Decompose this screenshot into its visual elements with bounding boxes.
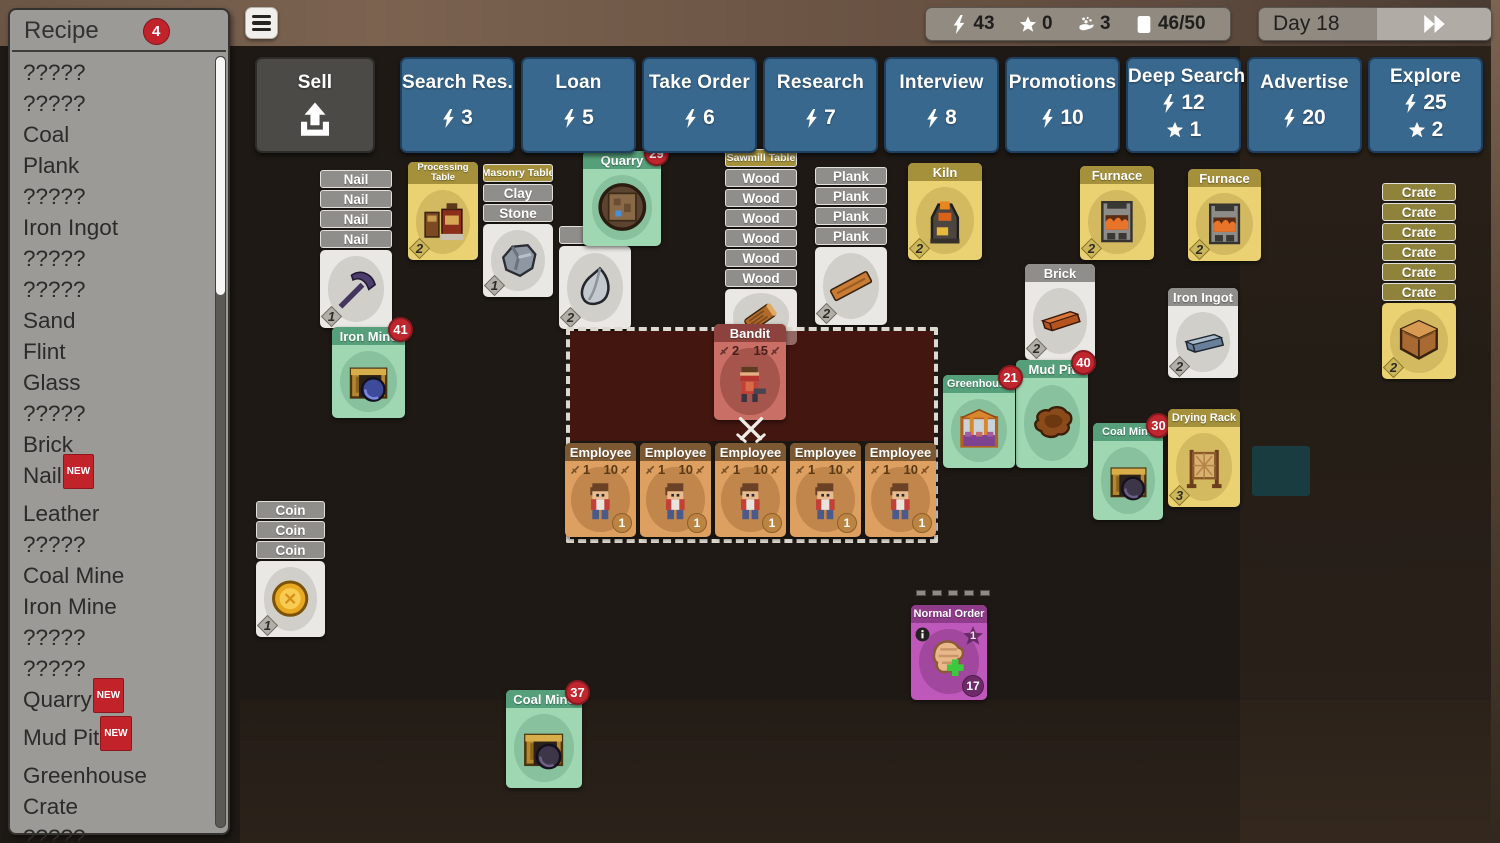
recipe-panel-title: Recipe	[24, 17, 99, 45]
search-res-button[interactable]: Search Res.3	[400, 57, 515, 153]
card-title: Furnace	[1199, 171, 1250, 186]
card-count-badge: 40	[1071, 350, 1096, 375]
lightning-icon	[442, 109, 455, 128]
recipe-item[interactable]: ?????	[23, 529, 220, 560]
sell-button[interactable]: Sell	[255, 57, 375, 153]
card-title-bar: Bandit	[714, 324, 786, 342]
card-face[interactable]: 1	[256, 561, 325, 637]
energy-cost: 6	[703, 106, 715, 130]
card-title: Nail	[344, 212, 369, 227]
recipe-item-label: ?????	[23, 246, 86, 271]
health-value: 10	[679, 462, 693, 477]
card-title: Furnace	[1092, 168, 1143, 183]
star-icon	[1408, 121, 1426, 139]
coin-value-badge: 1	[912, 513, 932, 533]
greenhouse-icon	[954, 401, 1004, 460]
recipe-item[interactable]: Greenhouse	[23, 760, 220, 791]
recipe-item-label: Nail	[23, 463, 62, 488]
card-title-bar[interactable]: Plank	[815, 187, 887, 205]
action-cost: 2	[1370, 118, 1481, 142]
recipe-item[interactable]: ?????	[23, 398, 220, 429]
card-title: Employee	[795, 445, 856, 460]
action-cost: 6	[644, 106, 755, 130]
card-title: Employee	[570, 445, 631, 460]
iron-mine-card[interactable]: Iron Mine41	[332, 327, 405, 418]
card-title-bar: Kiln	[908, 163, 982, 181]
sell-label: Sell	[257, 72, 373, 94]
unit-stats: 110	[790, 462, 861, 477]
card-title-bar: Normal Order	[911, 605, 987, 623]
sword-icon	[770, 345, 781, 356]
quarry-icon	[595, 177, 650, 237]
recipe-item-label: Sand	[23, 308, 76, 333]
card-value: 2	[1026, 338, 1047, 359]
energy-cost: 25	[1423, 91, 1446, 115]
stat-worker: 3	[1077, 13, 1111, 35]
action-label: Loan	[523, 72, 634, 94]
sword-icon	[770, 464, 781, 475]
card-title: Coin	[276, 523, 306, 538]
card-title: Wood	[742, 271, 779, 286]
card-title-bar[interactable]: Wood	[725, 249, 797, 267]
action-cost: 1	[1128, 118, 1239, 142]
card-title: Crate	[1402, 225, 1437, 240]
plank-stack[interactable]: PlankPlankPlankPlank2	[815, 167, 887, 325]
card-title: Coin	[276, 543, 306, 558]
attack-value: 2	[732, 343, 739, 358]
stat-card-count: 46/50	[1135, 13, 1206, 35]
energy-cost: 10	[1060, 106, 1083, 130]
unit-stats: 110	[865, 462, 936, 477]
recipe-item[interactable]: Coal	[23, 119, 220, 150]
action-cost: 5	[523, 106, 634, 130]
recipe-item[interactable]: Iron Mine	[23, 591, 220, 622]
crate-stack[interactable]: CrateCrateCrateCrateCrateCrate2	[1382, 183, 1456, 379]
unit-stats: 110	[640, 462, 711, 477]
order-progress-pip	[948, 590, 958, 596]
card-value: 2	[1081, 238, 1102, 259]
coal-mine-card-1[interactable]: Coal Mine30	[1093, 423, 1163, 520]
new-badge: NEW	[93, 678, 124, 713]
card-face	[1016, 378, 1088, 468]
recipe-item-label: Crate	[23, 794, 78, 819]
card-title-bar[interactable]: Crate	[1382, 183, 1456, 201]
card-title-bar[interactable]: Nail	[320, 190, 392, 208]
card-face[interactable]: 1	[483, 224, 553, 297]
card-value: 2	[816, 303, 837, 324]
recipe-item[interactable]: ?????	[23, 622, 220, 653]
explore-button[interactable]: Explore252	[1368, 57, 1483, 153]
card-face	[1093, 441, 1163, 520]
card-value: 2	[909, 238, 930, 259]
crossed-swords-icon	[732, 412, 770, 450]
card-title-bar[interactable]: Crate	[1382, 203, 1456, 221]
card-face: 2	[408, 184, 478, 260]
recipe-item[interactable]: NailNEW	[23, 460, 220, 498]
sword-icon	[570, 464, 581, 475]
recipe-item[interactable]: Sand	[23, 305, 220, 336]
sawmill-table-stack[interactable]: Sawmill TableWoodWoodWoodWoodWoodWood	[725, 149, 797, 345]
coin-value-badge: 1	[762, 513, 782, 533]
nail-stack[interactable]: NailNailNailNail1	[320, 170, 392, 328]
action-label: Explore	[1370, 66, 1481, 88]
card-title-bar[interactable]: Wood	[725, 189, 797, 207]
card-title: Plank	[833, 229, 869, 244]
masonry-table-stack[interactable]: Masonry TableClayStone1	[483, 164, 553, 297]
card-title-bar[interactable]: Crate	[1382, 243, 1456, 261]
card-title: Plank	[833, 169, 869, 184]
card-title-bar[interactable]: Crate	[1382, 283, 1456, 301]
card-title-bar[interactable]: Masonry Table	[483, 164, 553, 182]
advertise-button[interactable]: Advertise20	[1247, 57, 1362, 153]
unit-stats: 110	[715, 462, 786, 477]
take-order-button[interactable]: Take Order6	[642, 57, 757, 153]
action-cost: 25	[1370, 91, 1481, 115]
card-title: Wood	[742, 251, 779, 266]
recipe-item-label: ?????	[23, 532, 86, 557]
card-title: Nail	[344, 172, 369, 187]
new-badge: NEW	[63, 454, 94, 489]
card-title: Plank	[833, 209, 869, 224]
card-title-bar: Iron Ingot	[1168, 288, 1238, 306]
sword-icon	[695, 464, 706, 475]
lightning-icon	[1041, 109, 1054, 128]
card-title: Crate	[1402, 265, 1437, 280]
brick-card[interactable]: Brick2	[1025, 264, 1095, 360]
action-cost: 12	[1128, 91, 1239, 115]
card-title-bar: Processing Table	[408, 162, 478, 184]
order-progress	[916, 590, 990, 596]
lightning-icon	[926, 109, 939, 128]
furnace-card-1[interactable]: Furnace2	[1080, 166, 1154, 260]
card-title-bar: Brick	[1025, 264, 1095, 282]
energy-cost: 20	[1302, 106, 1325, 130]
menu-button[interactable]	[245, 7, 278, 39]
card-value: 1	[257, 615, 278, 636]
recipe-list: ??????????CoalPlank?????Iron Ingot??????…	[10, 52, 228, 843]
recipe-item[interactable]: Crate	[23, 791, 220, 822]
card-value: 2	[1383, 357, 1404, 378]
recipe-item-label: ?????	[23, 60, 86, 85]
action-label: Promotions	[1007, 72, 1118, 94]
lightning-icon	[1404, 94, 1417, 113]
card-value: 2	[1169, 356, 1190, 377]
card-title: Employee	[645, 445, 706, 460]
order-star-value: 1	[962, 625, 984, 647]
card-face[interactable]: 2	[1382, 303, 1456, 379]
deep-search-button[interactable]: Deep Search121	[1126, 57, 1241, 153]
info-icon[interactable]	[915, 627, 930, 642]
lightning-icon	[950, 15, 968, 34]
new-badge: NEW	[100, 716, 131, 751]
card-face: 2	[1188, 187, 1261, 261]
card-title-bar[interactable]: Wood	[725, 169, 797, 187]
action-cost: 8	[886, 106, 997, 130]
recipe-item[interactable]: ?????	[23, 274, 220, 305]
card-title: Wood	[742, 171, 779, 186]
health-value: 10	[754, 462, 768, 477]
unit-stats: 110	[565, 462, 636, 477]
recipe-item-label: ?????	[23, 625, 86, 650]
greenhouse-card[interactable]: Greenhouse21	[943, 375, 1015, 468]
recipe-item-label: Mud Pit	[23, 725, 99, 750]
bandit-icon	[728, 359, 771, 410]
fast-forward-button[interactable]	[1377, 8, 1491, 40]
sword-icon	[719, 345, 730, 356]
action-label: Search Res.	[402, 72, 513, 94]
star-icon	[1166, 121, 1184, 139]
card-title: Wood	[742, 191, 779, 206]
card-title: Masonry Table	[483, 167, 553, 179]
card-title-bar[interactable]: Nail	[320, 170, 392, 188]
card-title: Crate	[1402, 245, 1437, 260]
lightning-icon	[684, 109, 697, 128]
action-label: Deep Search	[1128, 66, 1239, 88]
stat-value: 43	[973, 13, 994, 35]
card-title-bar[interactable]: Coin	[256, 541, 325, 559]
health-value: 10	[604, 462, 618, 477]
bandit-card[interactable]: Bandit215	[714, 324, 786, 420]
card-title: Quarry	[601, 153, 644, 168]
card-title: Crate	[1402, 205, 1437, 220]
recipe-scrollbar[interactable]	[215, 56, 226, 828]
coal-mine-icon	[1104, 450, 1153, 512]
loan-button[interactable]: Loan5	[521, 57, 636, 153]
recipe-item-label: Coal Mine	[23, 563, 124, 588]
card-title-bar[interactable]: Nail	[320, 230, 392, 248]
card-title-bar: Employee	[790, 443, 861, 461]
card-title: Clay	[504, 186, 533, 201]
card-title-bar[interactable]: Clay	[483, 184, 553, 202]
coin-value-badge: 1	[837, 513, 857, 533]
card-title: Wood	[742, 211, 779, 226]
card-title: Drying Rack	[1172, 412, 1236, 424]
sword-icon	[845, 464, 856, 475]
card-title: Sawmill Table	[727, 152, 796, 164]
card-title: Nail	[344, 192, 369, 207]
recipe-item[interactable]: Coal Mine	[23, 560, 220, 591]
card-count-icon	[1135, 15, 1153, 34]
recipe-item[interactable]: ?????	[23, 88, 220, 119]
card-title: Crate	[1402, 285, 1437, 300]
iron-ingot-card[interactable]: Iron Ingot2	[1168, 288, 1238, 378]
card-value: 1	[484, 275, 505, 296]
card-face[interactable]: 1	[320, 250, 392, 328]
card-face: 2	[908, 181, 982, 260]
card-title-bar[interactable]: Crate	[1382, 223, 1456, 241]
mud-pit-icon	[1027, 388, 1077, 458]
card-count-badge: 41	[388, 317, 413, 342]
recipe-item-label: Plank	[23, 153, 79, 178]
attack-value: 1	[808, 462, 815, 477]
star-icon	[1019, 15, 1037, 34]
research-button[interactable]: Research7	[763, 57, 878, 153]
card-face	[943, 393, 1015, 468]
recipe-item[interactable]: Brick	[23, 429, 220, 460]
employee-card-3[interactable]: Employee1101	[715, 443, 786, 537]
stat-lightning: 43	[950, 13, 994, 35]
recipe-item-label: Iron Ingot	[23, 215, 118, 240]
card-title-bar[interactable]: Stone	[483, 204, 553, 222]
card-value: 2	[409, 238, 430, 259]
card-title-bar: Furnace	[1080, 166, 1154, 184]
recipe-item[interactable]: Glass	[23, 367, 220, 398]
hamburger-icon	[252, 15, 271, 32]
card-title: Employee	[870, 445, 931, 460]
card-value: 2	[1189, 239, 1210, 260]
card-title-bar[interactable]: Nail	[320, 210, 392, 228]
sell-upload-icon	[294, 98, 336, 142]
card-title-bar[interactable]: Plank	[815, 227, 887, 245]
stat-star: 0	[1019, 13, 1053, 35]
card-face: 2	[1025, 282, 1095, 360]
action-label: Interview	[886, 72, 997, 94]
action-label: Advertise	[1249, 72, 1360, 94]
recipe-item-label: ?????	[23, 184, 86, 209]
processing-table-card[interactable]: Processing Table2	[408, 162, 478, 260]
recipe-item-label: ?????	[23, 401, 86, 426]
card-title-bar[interactable]: Coin	[256, 521, 325, 539]
action-label: Research	[765, 72, 876, 94]
kiln-card[interactable]: Kiln2	[908, 163, 982, 260]
worker-icon	[1077, 15, 1095, 34]
card-count-badge: 21	[998, 365, 1023, 390]
attack-value: 1	[733, 462, 740, 477]
recipe-item-label: Leather	[23, 501, 99, 526]
drying-rack-card[interactable]: Drying Rack3	[1168, 409, 1240, 507]
order-count-badge: 17	[962, 675, 984, 697]
game-screen: Recipe 4 ??????????CoalPlank?????Iron In…	[0, 0, 1500, 843]
card-face: 2	[1080, 184, 1154, 260]
energy-cost: 12	[1181, 91, 1204, 115]
recipe-item[interactable]: Plank	[23, 150, 220, 181]
furnace-card-2[interactable]: Furnace2	[1188, 169, 1261, 261]
card-title-bar[interactable]: Plank	[815, 167, 887, 185]
resources-bar: 430346/50	[925, 7, 1231, 41]
recipe-item[interactable]: ?????	[23, 57, 220, 88]
card-value: 3	[1169, 485, 1190, 506]
recipe-item-label: ?????	[23, 277, 86, 302]
quarry-card[interactable]: Quarry29	[583, 151, 661, 246]
employee-card-1[interactable]: Employee1101	[565, 443, 636, 537]
card-title-bar: Drying Rack	[1168, 409, 1240, 427]
recipe-item-label: Flint	[23, 339, 66, 364]
day-label: Day 18	[1259, 8, 1377, 40]
health-value: 15	[754, 343, 768, 358]
recipe-item[interactable]: ?????	[23, 243, 220, 274]
card-title-bar: Employee	[565, 443, 636, 461]
recipe-panel: Recipe 4 ??????????CoalPlank?????Iron In…	[8, 8, 230, 835]
recipe-item[interactable]: Iron Ingot	[23, 212, 220, 243]
card-face[interactable]: 2	[559, 246, 631, 329]
recipe-item[interactable]: Flint	[23, 336, 220, 367]
card-title: Bandit	[730, 326, 770, 341]
energy-cost: 3	[461, 106, 473, 130]
normal-order-card[interactable]: Normal Order117	[911, 605, 987, 700]
employee-card-5[interactable]: Employee1101	[865, 443, 936, 537]
card-title-bar[interactable]: Wood	[725, 269, 797, 287]
order-progress-pip	[964, 590, 974, 596]
star-cost: 2	[1432, 118, 1444, 142]
coal-mine-card-2[interactable]: Coal Mine37	[506, 690, 582, 788]
card-title-bar: Employee	[640, 443, 711, 461]
recipe-item-label: Iron Mine	[23, 594, 117, 619]
recipe-item-label: ?????	[23, 91, 86, 116]
coal-mine-icon	[517, 717, 570, 779]
order-progress-pip	[916, 590, 926, 596]
card-title-bar[interactable]: Wood	[725, 209, 797, 227]
recipe-panel-header: Recipe 4	[10, 10, 228, 48]
card-title-bar[interactable]: Coin	[256, 501, 325, 519]
card-title-bar[interactable]: Wood	[725, 229, 797, 247]
card-title-bar[interactable]: Plank	[815, 207, 887, 225]
card-face	[506, 708, 582, 788]
employee-card-4[interactable]: Employee1101	[790, 443, 861, 537]
recipe-item-label: Greenhouse	[23, 763, 147, 788]
card-face	[583, 169, 661, 246]
stat-value: 0	[1042, 13, 1053, 35]
action-label: Take Order	[644, 72, 755, 94]
interview-button[interactable]: Interview8	[884, 57, 999, 153]
coin-stack[interactable]: CoinCoinCoin1	[256, 501, 325, 637]
sword-icon	[920, 464, 931, 475]
card-title: Wood	[742, 231, 779, 246]
card-value: 1	[321, 306, 342, 327]
action-cost: 7	[765, 106, 876, 130]
card-title: Brick	[1044, 266, 1077, 281]
sword-icon	[620, 464, 631, 475]
card-count-badge: 37	[565, 680, 590, 705]
action-cost: 3	[402, 106, 513, 130]
lightning-icon	[1283, 109, 1296, 128]
day-panel: Day 18	[1258, 7, 1492, 41]
card-title: Plank	[833, 189, 869, 204]
coin-value-badge: 1	[687, 513, 707, 533]
lightning-icon	[1162, 94, 1175, 113]
card-title-bar: Employee	[865, 443, 936, 461]
attack-value: 1	[883, 462, 890, 477]
recipe-item[interactable]: ?????	[23, 822, 220, 843]
iron-mine-icon	[343, 353, 394, 410]
mud-pit-card[interactable]: Mud Pit40	[1016, 360, 1088, 468]
sword-icon	[795, 464, 806, 475]
card-title: Crate	[1402, 185, 1437, 200]
card-title: Nail	[344, 232, 369, 247]
energy-cost: 8	[945, 106, 957, 130]
card-face	[332, 345, 405, 418]
lightning-icon	[805, 109, 818, 128]
card-face[interactable]: 2	[815, 247, 887, 325]
health-value: 10	[829, 462, 843, 477]
card-title-bar: Furnace	[1188, 169, 1261, 187]
card-title: Normal Order	[914, 608, 985, 620]
promotions-button[interactable]: Promotions10	[1005, 57, 1120, 153]
order-progress-pip	[980, 590, 990, 596]
recipe-item[interactable]: Leather	[23, 498, 220, 529]
star-cost: 1	[1190, 118, 1202, 142]
employee-card-2[interactable]: Employee1101	[640, 443, 711, 537]
health-value: 10	[904, 462, 918, 477]
card-value: 2	[560, 307, 581, 328]
recipe-scrollbar-thumb[interactable]	[216, 57, 225, 295]
card-title: Coin	[276, 503, 306, 518]
coin-value-badge: 1	[612, 513, 632, 533]
card-title: Processing Table	[411, 163, 475, 183]
recipe-item[interactable]: Mud PitNEW	[23, 722, 220, 760]
card-title-bar[interactable]: Crate	[1382, 263, 1456, 281]
recipe-item[interactable]: ?????	[23, 181, 220, 212]
sword-icon	[645, 464, 656, 475]
